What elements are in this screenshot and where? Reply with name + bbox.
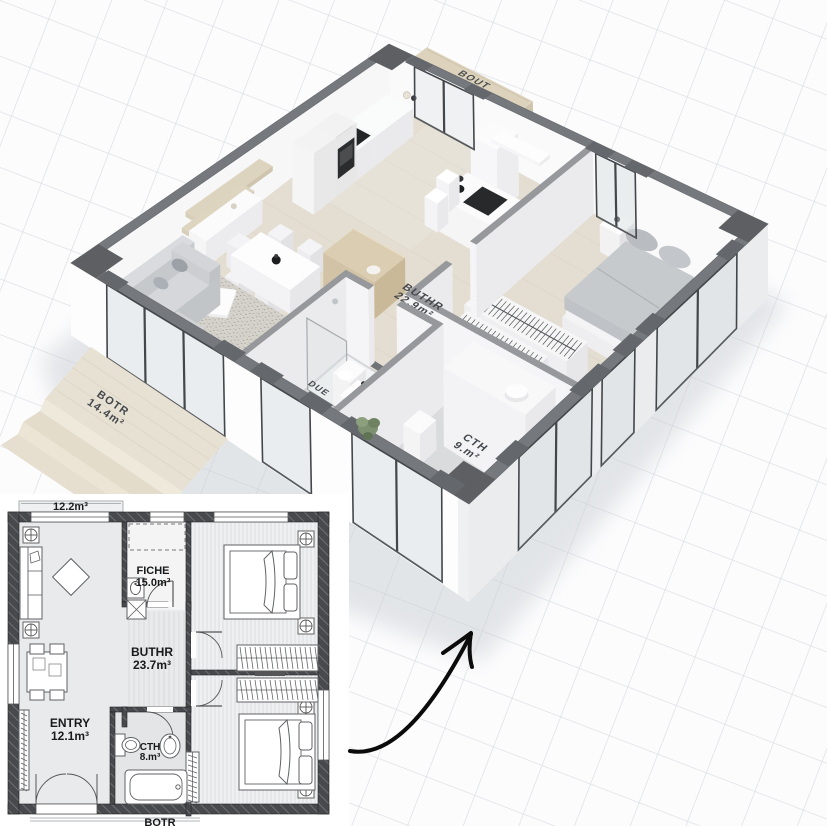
svg-text:FICHE: FICHE [137, 565, 170, 577]
svg-text:ENTRY: ENTRY [50, 716, 90, 730]
svg-text:12.2m³: 12.2m³ [53, 501, 88, 513]
svg-text:12.1m³: 12.1m³ [51, 729, 89, 743]
svg-text:15.0m³: 15.0m³ [136, 577, 171, 589]
svg-text:23.7m³: 23.7m³ [133, 658, 171, 672]
svg-text:8.m³: 8.m³ [140, 752, 161, 763]
svg-text:BUTHR: BUTHR [131, 645, 173, 659]
svg-text:BOTR: BOTR [144, 817, 175, 826]
